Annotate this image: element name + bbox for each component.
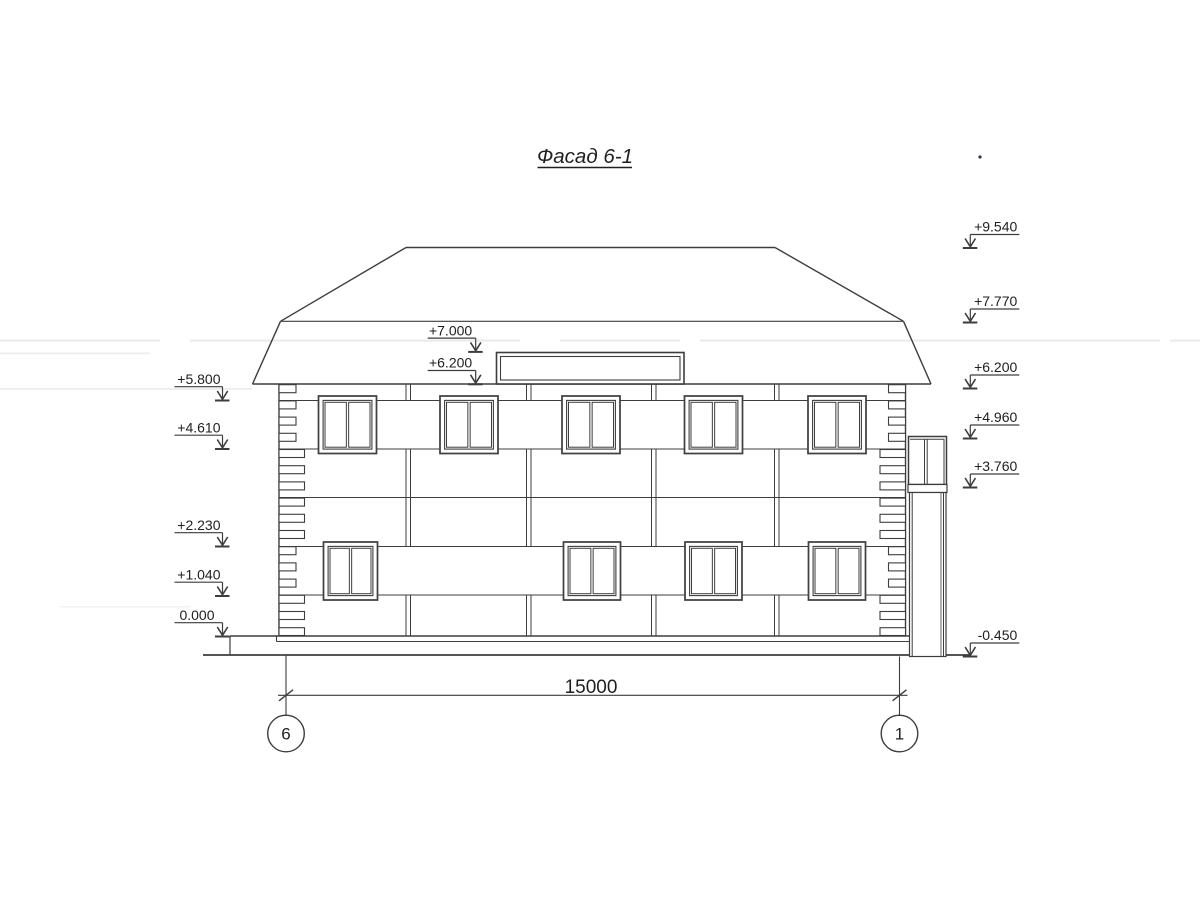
svg-text:1: 1 bbox=[895, 725, 904, 744]
svg-text:+3.760: +3.760 bbox=[974, 458, 1017, 474]
svg-text:+7.770: +7.770 bbox=[974, 293, 1017, 309]
svg-text:+6.200: +6.200 bbox=[429, 355, 472, 371]
svg-text:+6.200: +6.200 bbox=[974, 359, 1017, 375]
svg-text:+4.960: +4.960 bbox=[974, 409, 1017, 425]
svg-text:+4.610: +4.610 bbox=[177, 419, 220, 435]
svg-text:+7.000: +7.000 bbox=[429, 322, 472, 338]
svg-text:0.000: 0.000 bbox=[179, 607, 214, 623]
svg-text:6: 6 bbox=[281, 725, 290, 744]
svg-text:15000: 15000 bbox=[565, 677, 618, 698]
svg-text:+1.040: +1.040 bbox=[177, 566, 220, 582]
svg-text:+5.800: +5.800 bbox=[177, 371, 220, 387]
svg-text:-0.450: -0.450 bbox=[978, 627, 1018, 643]
svg-text:Фасад 6-1: Фасад 6-1 bbox=[537, 145, 633, 168]
svg-text:+2.230: +2.230 bbox=[177, 517, 220, 533]
svg-text:+9.540: +9.540 bbox=[974, 219, 1017, 235]
